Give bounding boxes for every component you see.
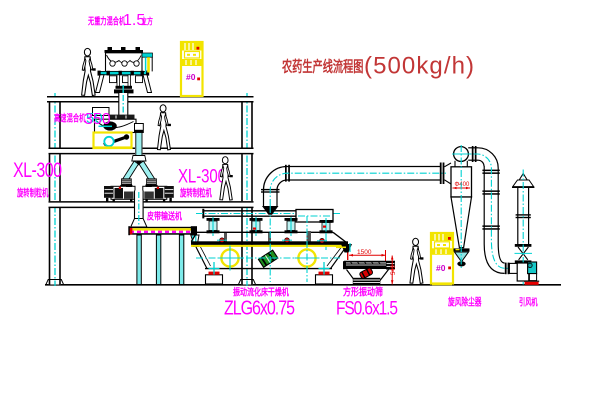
svg-text:#0: #0 <box>186 72 196 82</box>
svg-text:高速混合机: 高速混合机 <box>54 112 85 124</box>
svg-text:1500: 1500 <box>357 249 372 256</box>
svg-text:350: 350 <box>84 111 111 128</box>
svg-text:ZLG6x0.75: ZLG6x0.75 <box>224 297 295 319</box>
svg-text:方形振动筛: 方形振动筛 <box>343 285 383 297</box>
svg-text:立方: 立方 <box>141 15 153 27</box>
svg-text:#0: #0 <box>436 263 446 273</box>
svg-text:皮带输送机: 皮带输送机 <box>146 210 182 222</box>
svg-text:旋转制粒机: 旋转制粒机 <box>16 187 49 199</box>
svg-text:Φ400: Φ400 <box>455 182 470 188</box>
svg-text:549: 549 <box>391 264 397 275</box>
svg-text:XL-300: XL-300 <box>13 159 62 183</box>
svg-text:引风机: 引风机 <box>519 296 538 308</box>
svg-text:无重力混合机: 无重力混合机 <box>87 15 125 27</box>
svg-text:农药生产线流程图: 农药生产线流程图 <box>281 58 363 75</box>
svg-text:XL-300: XL-300 <box>178 165 226 187</box>
svg-text:旋风除尘器: 旋风除尘器 <box>447 295 482 308</box>
svg-text:旋转制粒机: 旋转制粒机 <box>179 187 212 199</box>
svg-text:(500kg/h): (500kg/h) <box>364 53 474 80</box>
svg-text:FS0.6x1.5: FS0.6x1.5 <box>336 297 398 319</box>
